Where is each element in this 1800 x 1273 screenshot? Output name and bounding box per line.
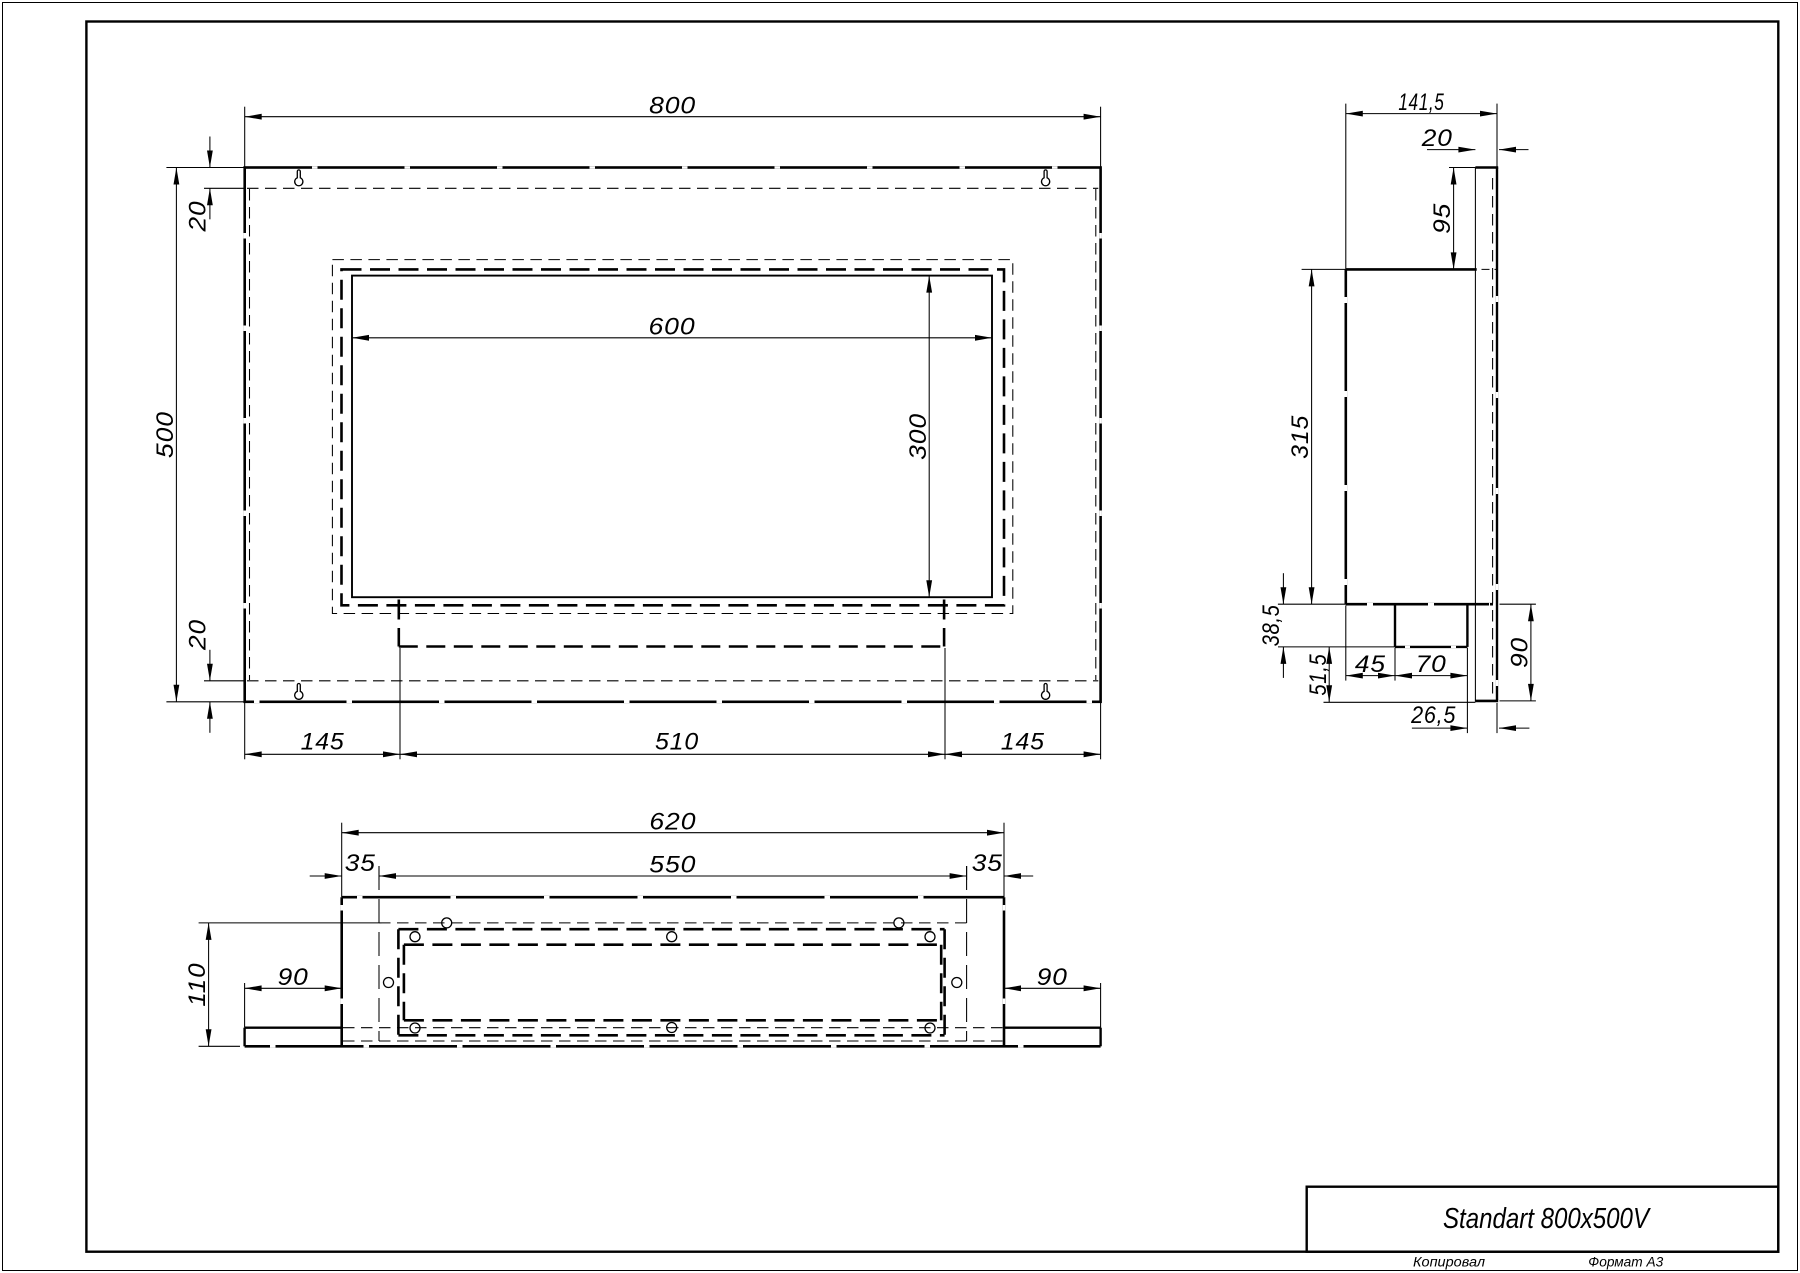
svg-text:51,5: 51,5: [1305, 654, 1332, 696]
svg-text:35: 35: [345, 850, 376, 877]
svg-text:20: 20: [184, 619, 211, 651]
svg-text:145: 145: [1001, 728, 1045, 755]
svg-text:600: 600: [649, 313, 696, 340]
svg-text:800: 800: [649, 92, 696, 119]
svg-text:620: 620: [649, 808, 696, 835]
svg-text:45: 45: [1355, 651, 1386, 678]
svg-text:550: 550: [649, 852, 696, 879]
svg-text:90: 90: [1507, 637, 1534, 668]
svg-text:35: 35: [972, 850, 1003, 877]
svg-text:141,5: 141,5: [1398, 89, 1444, 116]
svg-text:510: 510: [655, 728, 699, 755]
svg-text:Формат А3: Формат А3: [1588, 1255, 1663, 1270]
svg-text:315: 315: [1287, 415, 1314, 459]
svg-text:90: 90: [1037, 964, 1068, 991]
svg-text:20: 20: [1421, 125, 1453, 152]
svg-text:300: 300: [905, 413, 932, 460]
svg-text:38,5: 38,5: [1258, 604, 1285, 646]
svg-text:110: 110: [184, 963, 211, 1007]
svg-text:70: 70: [1416, 651, 1447, 678]
svg-text:26,5: 26,5: [1410, 702, 1456, 729]
svg-text:90: 90: [278, 964, 309, 991]
svg-text:145: 145: [301, 728, 345, 755]
svg-text:Копировал: Копировал: [1413, 1255, 1485, 1270]
svg-text:Standart 800x500V: Standart 800x500V: [1443, 1203, 1652, 1235]
svg-text:95: 95: [1429, 203, 1456, 234]
svg-text:500: 500: [152, 411, 179, 458]
svg-text:20: 20: [184, 201, 211, 233]
